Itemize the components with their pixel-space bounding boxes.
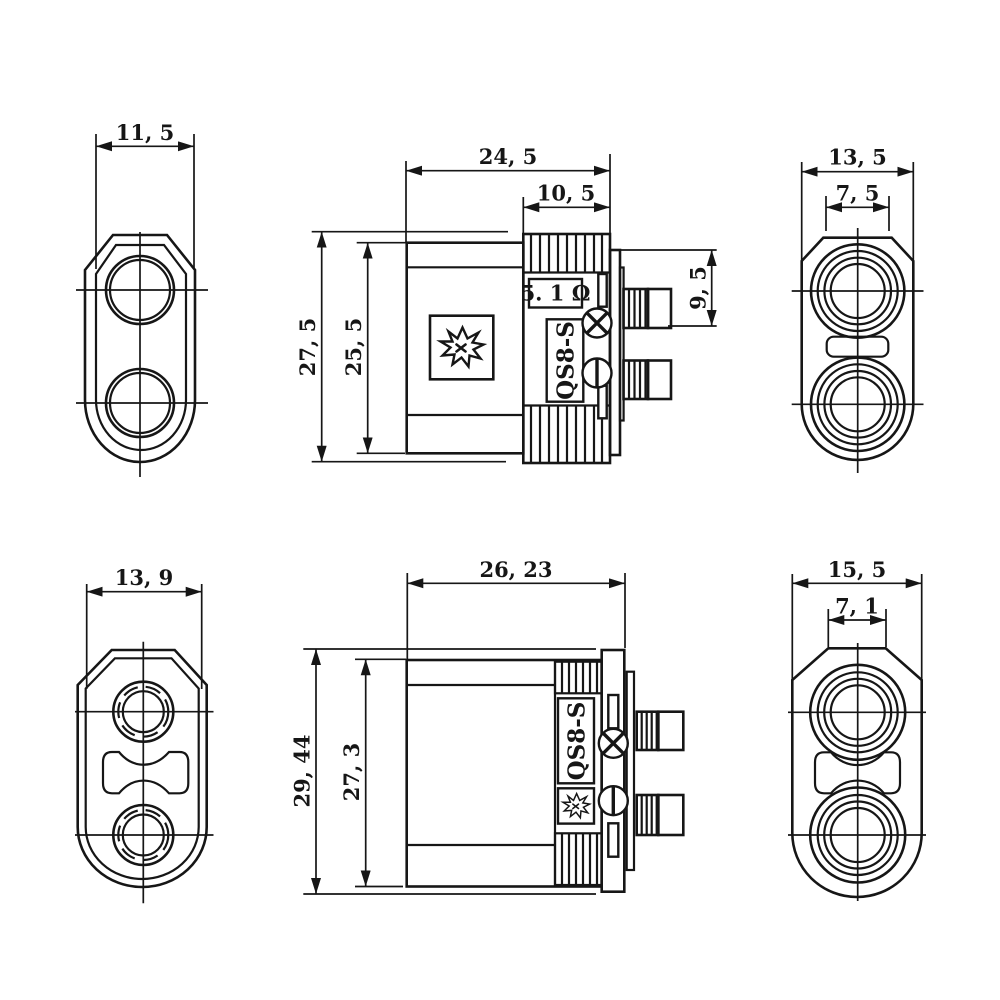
- dim-label-hole-width: 7, 5: [836, 181, 880, 206]
- slotted-screw-icon: [599, 786, 628, 815]
- latch-pin-bottom: [598, 386, 606, 419]
- slotted-screw-icon: [583, 359, 612, 388]
- latch-pin-top: [608, 695, 618, 728]
- qs8s-drawing-canvas: 11, 5 24, 5 10, 5 27, 5 25, 5 9, 5: [0, 0, 1000, 1000]
- dim-label-width: 13, 9: [115, 565, 173, 590]
- dim-label-hole-width: 7, 1: [835, 594, 879, 619]
- dim-label-bullet-spacing: 9, 5: [686, 266, 711, 310]
- model-marking-text: QS8-S: [564, 702, 591, 781]
- latch-pin-top: [598, 274, 606, 307]
- dim-label-overall-height: 29, 44: [290, 734, 315, 807]
- dim-label-width: 13, 5: [828, 145, 886, 170]
- dim-label-width: 11, 5: [116, 120, 174, 145]
- resistor-marking-text: 5. 1 Ω: [521, 281, 591, 306]
- dim-label-width: 15, 5: [828, 557, 886, 582]
- dim-label-overall-width: 26, 23: [479, 557, 552, 582]
- phillips-screw-icon: [599, 729, 628, 758]
- dim-label-body-height: 27, 3: [339, 743, 364, 801]
- technical-drawing-page: 11, 5 24, 5 10, 5 27, 5 25, 5 9, 5: [0, 0, 1000, 1000]
- latch-pin-bottom: [608, 823, 618, 856]
- dim-label-overall-height: 27, 5: [295, 318, 320, 376]
- model-marking-text: QS8-S: [553, 321, 580, 400]
- phillips-screw-icon: [583, 309, 612, 338]
- dim-label-overall-width: 24, 5: [479, 144, 537, 169]
- dim-label-body-height: 25, 5: [341, 318, 366, 376]
- dim-label-cap-width: 10, 5: [537, 181, 595, 206]
